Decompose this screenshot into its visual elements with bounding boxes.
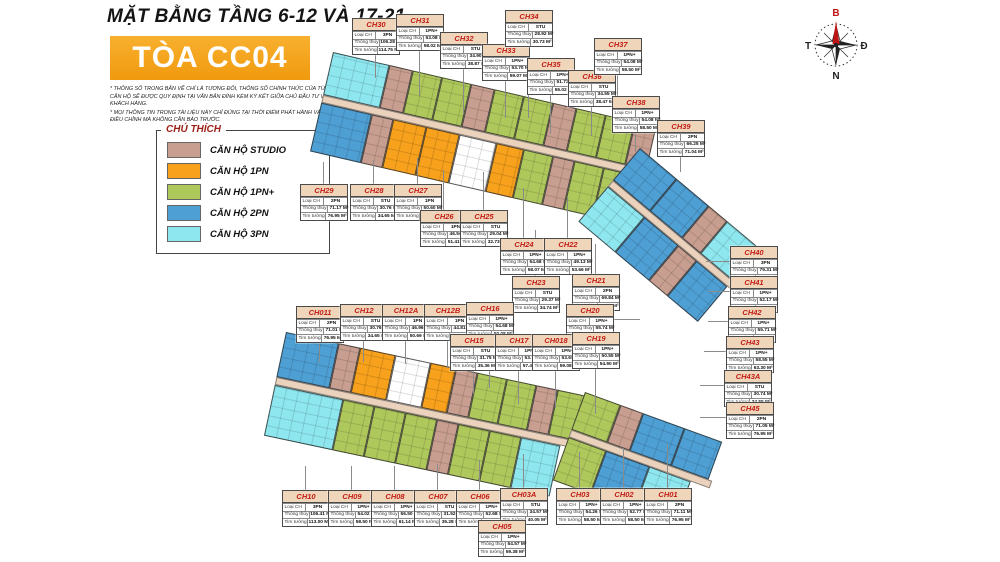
card-row-wall: Tim tường76.95 M² [301, 212, 347, 220]
unit-id: CH05 [479, 521, 525, 533]
card-row-type: Loại CH1PN+ [483, 57, 529, 65]
card-label: Loại CH [372, 504, 394, 511]
card-value: 30.74 M² [751, 392, 775, 399]
unit-card-ch37: CH37Loại CH1PN+Thông thủy54.08 M²Tim tườ… [594, 38, 642, 75]
card-value: 1PN+ [489, 316, 513, 323]
legend-swatch [167, 163, 201, 179]
card-row-type: Loại CH1PN+ [467, 315, 513, 323]
card-value: 1PN [417, 198, 441, 205]
card-value: STU [591, 84, 615, 91]
card-label: Thông thủy [441, 54, 467, 61]
unit-card-ch24: CH24Loại CH1PN+Thông thủy54.68 M²Tim tườ… [500, 238, 548, 275]
unit-card-ch10: CH10Loại CH3PNThông thủy106.41 M²Tim tườ… [282, 490, 330, 527]
connector-line [612, 319, 640, 320]
card-row-type: Loại CHSTU [569, 83, 615, 91]
card-label: Thông thủy [297, 328, 323, 335]
card-value: 79.31 M² [757, 268, 781, 275]
card-row-type: Loại CHSTU [506, 23, 552, 31]
unit-card-ch43: CH43Loại CH1PN+Thông thủy58.55 M²Tim tườ… [726, 336, 774, 373]
card-row-clear: Thông thủy54.08 M² [595, 59, 641, 67]
card-value: 58.55 M² [753, 358, 777, 365]
card-label: Thông thủy [731, 298, 757, 305]
card-label: Tim tường [613, 125, 637, 132]
card-label: Thông thủy [483, 66, 509, 73]
unit-id: CH12 [341, 305, 387, 317]
card-label: Thông thủy [573, 354, 599, 361]
card-row-wall: Tim tường54.90 M² [573, 360, 619, 368]
card-value: 1PN+ [505, 58, 529, 65]
unit-card-ch011: CH011Loại CH2PNThông thủy71.01 M²Tim tườ… [296, 306, 344, 343]
card-value: 2PN [323, 198, 347, 205]
unit-card-ch34: CH34Loại CHSTUThông thủy28.92 M²Tim tườn… [505, 10, 553, 47]
card-row-type: Loại CHSTU [461, 223, 507, 231]
card-value: 28.92 M² [532, 32, 556, 39]
card-row-clear: Thông thủy58.55 M² [727, 357, 773, 365]
card-label: Loại CH [731, 290, 753, 297]
disclaimer-notes: * THÔNG SỐ TRONG BẢN VẼ CHỈ LÀ TƯƠNG ĐỐI… [110, 86, 345, 126]
card-row-type: Loại CH2PN [301, 197, 347, 205]
card-row-clear: Thông thủy106.28 M² [353, 39, 399, 47]
unit-id: CH41 [731, 277, 777, 289]
card-label: Thông thủy [351, 206, 377, 213]
unit-id: CH45 [727, 403, 773, 415]
card-label: Thông thủy [415, 512, 441, 519]
card-value: 50.55 M² [599, 354, 623, 361]
card-row-clear: Thông thủy50.55 M² [573, 353, 619, 361]
unit-id: CH16 [467, 303, 513, 315]
legend-label: CĂN HỘ 1PN [210, 166, 269, 177]
unit-card-ch07: CH07Loại CHSTUThông thủy31.52 M²Tim tườn… [414, 490, 462, 527]
unit-id: CH10 [283, 491, 329, 503]
card-label: Tim tường [569, 99, 593, 106]
tower-banner: TÒA CC04 [110, 36, 310, 80]
connector-line [550, 88, 551, 134]
card-row-wall: Tim tường38.47 M² [569, 98, 615, 106]
card-value: 1PN+ [501, 534, 525, 541]
connector-line [443, 170, 444, 210]
unit-card-ch19: CH19Loại CH1PN+Thông thủy50.55 M²Tim tườ… [572, 332, 620, 369]
connector-line [623, 448, 624, 488]
card-row-type: Loại CH2PN [727, 415, 773, 423]
connector-line [595, 362, 596, 414]
unit-id: CH42 [729, 307, 775, 319]
tower-name: TÒA CC04 [132, 41, 287, 75]
connector-line [437, 464, 438, 490]
card-row-clear: Thông thủy56.50 M² [372, 511, 418, 519]
unit-id: CH39 [658, 121, 704, 133]
card-label: Thông thủy [461, 232, 487, 239]
card-label: Tim tường [479, 549, 503, 556]
card-label: Loại CH [613, 110, 635, 117]
card-label: Thông thủy [301, 206, 327, 213]
card-row-type: Loại CHSTU [351, 197, 397, 205]
card-value: STU [473, 348, 497, 355]
card-row-wall: Tim tường50.69 M² [383, 332, 429, 340]
card-label: Tim tường [545, 267, 569, 274]
card-row-wall: Tim tường76.95 M² [727, 430, 773, 438]
card-label: Thông thủy [372, 512, 398, 519]
card-row-clear: Thông thủy71.05 M² [727, 423, 773, 431]
card-row-clear: Thông thủy52.68 M² [457, 511, 503, 519]
legend-label: CĂN HỘ 3PN [210, 229, 269, 240]
unit-id: CH29 [301, 185, 347, 197]
card-row-type: Loại CH1PN+ [595, 51, 641, 59]
card-label: Thông thủy [467, 324, 493, 331]
unit-card-ch32: CH32Loại CHSTUThông thủy34.90 M²Tim tườn… [440, 32, 488, 69]
card-label: Thông thủy [545, 260, 571, 267]
card-label: Loại CH [397, 28, 419, 35]
card-row-type: Loại CH1PN+ [727, 349, 773, 357]
card-label: Tim tường [513, 305, 537, 312]
card-label: Loại CH [341, 318, 363, 325]
compass-south-label: N [832, 71, 839, 82]
card-row-wall: Tim tường58.50 M² [329, 518, 375, 526]
card-label: Loại CH [533, 348, 555, 355]
unit-id: CH28 [351, 185, 397, 197]
card-label: Loại CH [441, 46, 463, 53]
card-label: Tim tường [533, 363, 557, 370]
card-row-wall: Tim tường38.87 M² [441, 60, 487, 68]
compass-icon: B N T Đ [803, 6, 869, 82]
unit-card-ch39: CH39Loại CH2PNThông thủy66.25 M²Tim tườn… [657, 120, 705, 157]
floorplan-page: MẶT BẰNG TẦNG 6-12 VÀ 17-21 TÒA CC04 * T… [0, 0, 1000, 562]
disclaimer-line: * THÔNG SỐ TRONG BẢN VẼ CHỈ LÀ TƯƠNG ĐỐI… [110, 86, 345, 109]
card-label: Thông thủy [283, 512, 309, 519]
card-label: Thông thủy [513, 298, 539, 305]
connector-line [505, 74, 506, 118]
compass-north-label: B [832, 8, 839, 19]
unit-id: CH40 [731, 247, 777, 259]
card-label: Loại CH [425, 318, 447, 325]
unit-id: CH23 [513, 277, 559, 289]
unit-id: CH37 [595, 39, 641, 51]
legend-item-1pn: CĂN HỘ 1PN [167, 163, 319, 179]
card-label: Loại CH [725, 384, 747, 391]
card-label: Loại CH [545, 252, 567, 259]
connector-line [305, 466, 306, 490]
connector-line [704, 351, 726, 352]
card-value: 1PN+ [589, 318, 613, 325]
card-row-clear: Thông thủy55.71 M² [729, 327, 775, 335]
card-row-clear: Thông thủy71.17 M² [301, 205, 347, 213]
card-label: Loại CH [483, 58, 505, 65]
connector-line [555, 364, 556, 408]
card-row-type: Loại CH3PN [283, 503, 329, 511]
card-label: Tim tường [601, 517, 625, 524]
card-row-type: Loại CH2PN [573, 287, 619, 295]
card-row-clear: Thông thủy29.37 M² [513, 297, 559, 305]
card-value: 40.05 M² [525, 517, 549, 524]
card-label: Loại CH [301, 198, 323, 205]
card-label: Thông thủy [457, 512, 483, 519]
card-row-clear: Thông thủy30.76 M² [341, 325, 387, 333]
card-value: 3PN [305, 504, 329, 511]
legend-label: CĂN HỘ 2PN [210, 208, 269, 219]
unit-card-ch28: CH28Loại CHSTUThông thủy30.76 M²Tim tườn… [350, 184, 398, 221]
legend-swatch [167, 142, 201, 158]
card-label: Thông thủy [533, 356, 559, 363]
unit-card-ch01: CH01Loại CH2PNThông thủy71.11 M²Tim tườn… [644, 488, 692, 525]
card-row-wall: Tim tường53.66 M² [545, 266, 591, 274]
connector-line [417, 158, 418, 184]
card-label: Thông thủy [725, 392, 751, 399]
unit-card-ch05: CH05Loại CH1PN+Thông thủy54.57 M²Tim tườ… [478, 520, 526, 557]
card-label: Tim tường [461, 239, 485, 246]
card-row-clear: Thông thủy54.68 M² [501, 259, 547, 267]
unit-card-ch03: CH03Loại CH1PN+Thông thủy54.26 M²Tim tườ… [556, 488, 604, 525]
card-row-wall: Tim tường71.04 M² [658, 148, 704, 156]
card-value: 1PN+ [751, 320, 775, 327]
card-row-type: Loại CH2PN [645, 501, 691, 509]
card-row-clear: Thông thủy71.11 M² [645, 509, 691, 517]
card-row-type: Loại CHSTU [441, 45, 487, 53]
card-value: STU [523, 502, 547, 509]
card-label: Tim tường [451, 363, 475, 370]
card-label: Loại CH [496, 348, 518, 355]
card-label: Loại CH [353, 32, 375, 39]
card-label: Thông thủy [727, 424, 753, 431]
card-row-clear: Thông thủy34.90 M² [441, 53, 487, 61]
unit-card-ch31: CH31Loại CH1PN+Thông thủy53.08 M²Tim tườ… [396, 14, 444, 51]
connector-line [567, 198, 568, 238]
card-row-clear: Thông thủy29.04 M² [461, 231, 507, 239]
card-row-clear: Thông thủy52.77 M² [601, 509, 647, 517]
card-label: Loại CH [729, 320, 751, 327]
card-value: 54.57 M² [505, 542, 529, 549]
card-row-clear: Thông thủy46.96 M² [383, 325, 429, 333]
card-label: Tim tường [501, 267, 525, 274]
card-value: 76.95 M² [669, 517, 693, 524]
unit-id: CH22 [545, 239, 591, 251]
card-label: Thông thủy [421, 232, 447, 239]
card-row-type: Loại CH1PN [383, 317, 429, 325]
card-label: Thông thủy [731, 268, 757, 275]
card-value: 54.08 M² [621, 60, 645, 67]
connector-line [706, 261, 730, 262]
card-label: Tim tường [421, 239, 445, 246]
connector-line [708, 321, 728, 322]
card-value: 34.57 M² [527, 510, 551, 517]
legend-swatch [167, 184, 201, 200]
card-label: Tim tường [528, 87, 552, 94]
card-row-wall: Tim tường34.74 M² [513, 304, 559, 312]
unit-id: CH06 [457, 491, 503, 503]
card-label: Tim tường [341, 333, 365, 340]
card-label: Loại CH [479, 534, 501, 541]
card-row-wall: Tim tường35.36 M² [451, 362, 497, 370]
connector-line [700, 417, 726, 418]
disclaimer-line: * MỌI THÔNG TIN TRONG TÀI LIỆU NÀY CHỈ Đ… [110, 110, 345, 125]
card-label: Loại CH [457, 504, 479, 511]
card-row-type: Loại CHSTU [501, 501, 547, 509]
card-label: Loại CH [506, 24, 528, 31]
card-row-clear: Thông thủy54.08 M² [613, 117, 659, 125]
card-row-type: Loại CH1PN+ [329, 503, 375, 511]
unit-id: CH34 [506, 11, 552, 23]
card-label: Loại CH [557, 502, 579, 509]
card-row-wall: Tim tường58.07 M² [501, 266, 547, 274]
unit-id: CH011 [297, 307, 343, 319]
unit-id: CH15 [451, 335, 497, 347]
card-value: 2PN [667, 502, 691, 509]
card-label: Tim tường [595, 67, 619, 74]
card-row-wall: Tim tường113.00 M² [283, 518, 329, 526]
card-row-type: Loại CH1PN [425, 317, 471, 325]
card-value: 1PN+ [749, 350, 773, 357]
card-label: Tim tường [573, 361, 597, 368]
legend-label: CĂN HỘ 1PN+ [210, 187, 274, 198]
card-label: Thông thủy [329, 512, 355, 519]
card-label: Tim tường [395, 213, 419, 220]
card-label: Tim tường [397, 43, 421, 50]
connector-line [373, 160, 374, 184]
card-label: Thông thủy [569, 92, 595, 99]
card-label: Loại CH [595, 52, 617, 59]
card-value: 54.68 M² [493, 324, 517, 331]
card-label: Tim tường [557, 517, 581, 524]
card-label: Tim tường [383, 333, 407, 340]
card-row-clear: Thông thủy30.76 M² [351, 205, 397, 213]
unit-id: CH09 [329, 491, 375, 503]
card-row-clear: Thông thủy44.81 M² [425, 325, 471, 333]
card-value: 66.25 M² [684, 142, 708, 149]
card-row-type: Loại CHSTU [415, 503, 461, 511]
card-row-clear: Thông thủy34.55 M² [569, 91, 615, 99]
card-value: 1PN+ [617, 52, 641, 59]
card-label: Loại CH [283, 504, 305, 511]
card-label: Tim tường [351, 213, 375, 220]
card-row-type: Loại CH1PN+ [457, 503, 503, 511]
card-row-clear: Thông thủy54.02 M² [329, 511, 375, 519]
card-label: Tim tường [301, 213, 325, 220]
unit-card-ch38: CH38Loại CH1PN+Thông thủy54.08 M²Tim tườ… [612, 96, 660, 133]
card-value: 54.90 M² [597, 361, 621, 368]
card-label: Thông thủy [383, 326, 409, 333]
legend-swatch [167, 226, 201, 242]
card-label: Tim tường [441, 61, 465, 68]
card-label: Tim tường [297, 335, 321, 342]
connector-line [419, 44, 420, 96]
card-label: Loại CH [415, 504, 437, 511]
unit-id: CH27 [395, 185, 441, 197]
unit-id: CH31 [397, 15, 443, 27]
card-value: 71.17 M² [327, 206, 351, 213]
card-row-wall: Tim tường59.07 M² [483, 72, 529, 80]
card-value: 53.66 M² [569, 267, 593, 274]
card-label: Tim tường [329, 519, 353, 526]
card-label: Thông thủy [729, 328, 755, 335]
card-row-type: Loại CHSTU [341, 317, 387, 325]
card-row-type: Loại CH1PN+ [729, 319, 775, 327]
unit-card-ch15: CH15Loại CHSTUThông thủy31.75 M²Tim tườn… [450, 334, 498, 371]
card-row-clear: Thông thủy53.08 M² [397, 35, 443, 43]
connector-line [667, 444, 668, 488]
card-row-wall: Tim tường58.50 M² [601, 516, 647, 524]
card-row-clear: Thông thủy55.74 M² [567, 325, 613, 333]
card-label: Loại CH [727, 350, 749, 357]
card-label: Loại CH [601, 502, 623, 509]
card-label: Loại CH [567, 318, 589, 325]
card-row-clear: Thông thủy28.92 M² [506, 31, 552, 39]
card-label: Thông thủy [353, 40, 379, 47]
legend-item-stu: CĂN HỘ STUDIO [167, 142, 319, 158]
card-row-type: Loại CH1PN+ [573, 345, 619, 353]
card-row-type: Loại CH1PN+ [545, 251, 591, 259]
card-row-clear: Thông thủy52.17 M² [731, 297, 777, 305]
card-row-clear: Thông thủy34.57 M² [501, 509, 547, 517]
card-label: Thông thủy [501, 260, 527, 267]
card-label: Tim tường [727, 431, 751, 438]
card-row-type: Loại CH1PN+ [557, 501, 603, 509]
card-label: Loại CH [461, 224, 483, 231]
unit-card-ch29: CH29Loại CH2PNThông thủy71.17 M²Tim tườn… [300, 184, 348, 221]
card-row-clear: Thông thủy66.25 M² [658, 141, 704, 149]
card-label: Thông thủy [658, 142, 684, 149]
card-label: Loại CH [329, 504, 351, 511]
legend-label: CĂN HỘ STUDIO [210, 145, 286, 156]
card-row-wall: Tim tường59.38 M² [479, 548, 525, 556]
card-value: 2PN [680, 134, 704, 141]
card-value: 1PN+ [567, 252, 591, 259]
card-label: Thông thủy [479, 542, 505, 549]
unit-id: CH25 [461, 211, 507, 223]
compass-west-label: T [805, 41, 811, 52]
card-label: Loại CH [658, 134, 680, 141]
card-row-clear: Thông thủy54.57 M² [479, 541, 525, 549]
connector-line [708, 291, 730, 292]
card-row-type: Loại CH3PN [731, 259, 777, 267]
card-label: Tim tường [415, 519, 439, 526]
card-value: 71.05 M² [753, 424, 777, 431]
card-row-clear: Thông thủy54.26 M² [557, 509, 603, 517]
card-row-clear: Thông thủy31.75 M² [451, 355, 497, 363]
unit-id: CH19 [573, 333, 619, 345]
card-row-wall: Tim tường76.95 M² [645, 516, 691, 524]
card-row-type: Loại CH2PN [658, 133, 704, 141]
card-label: Loại CH [297, 320, 319, 327]
unit-card-ch08: CH08Loại CH1PN+Thông thủy56.50 M²Tim tườ… [371, 490, 419, 527]
card-value: 76.95 M² [751, 431, 775, 438]
card-row-clear: Thông thủy49.13 M² [545, 259, 591, 267]
card-row-wall: Tim tường58.50 M² [595, 66, 641, 74]
unit-id: CH24 [501, 239, 547, 251]
unit-card-ch22: CH22Loại CH1PN+Thông thủy49.13 M²Tim tườ… [544, 238, 592, 275]
card-label: Loại CH [467, 316, 489, 323]
card-value: 30.73 M² [530, 39, 554, 46]
legend-item-1pn+: CĂN HỘ 1PN+ [167, 184, 319, 200]
card-label: Loại CH [731, 260, 753, 267]
card-value: 2PN [595, 288, 619, 295]
card-row-clear: Thông thủy54.68 M² [467, 323, 513, 331]
card-value: STU [483, 224, 507, 231]
card-row-clear: Thông thủy71.01 M² [297, 327, 343, 335]
card-value: 52.17 M² [757, 298, 781, 305]
unit-id: CH43 [727, 337, 773, 349]
unit-card-ch36: CH36Loại CHSTUThông thủy34.55 M²Tim tườn… [568, 70, 616, 107]
card-row-type: Loại CHSTU [725, 383, 771, 391]
card-value: 49.13 M² [571, 260, 595, 267]
card-label: Thông thủy [528, 80, 554, 87]
unit-card-ch12: CH12Loại CHSTUThông thủy30.76 M²Tim tườn… [340, 304, 388, 341]
card-label: Thông thủy [573, 296, 599, 303]
card-label: Loại CH [421, 224, 443, 231]
connector-line [394, 466, 395, 490]
unit-card-ch02: CH02Loại CH1PN+Thông thủy52.77 M²Tim tườ… [600, 488, 648, 525]
unit-id: CH03 [557, 489, 603, 501]
unit-card-ch09: CH09Loại CH1PN+Thông thủy54.02 M²Tim tườ… [328, 490, 376, 527]
card-row-clear: Thông thủy106.41 M² [283, 511, 329, 519]
connector-line [523, 188, 524, 238]
